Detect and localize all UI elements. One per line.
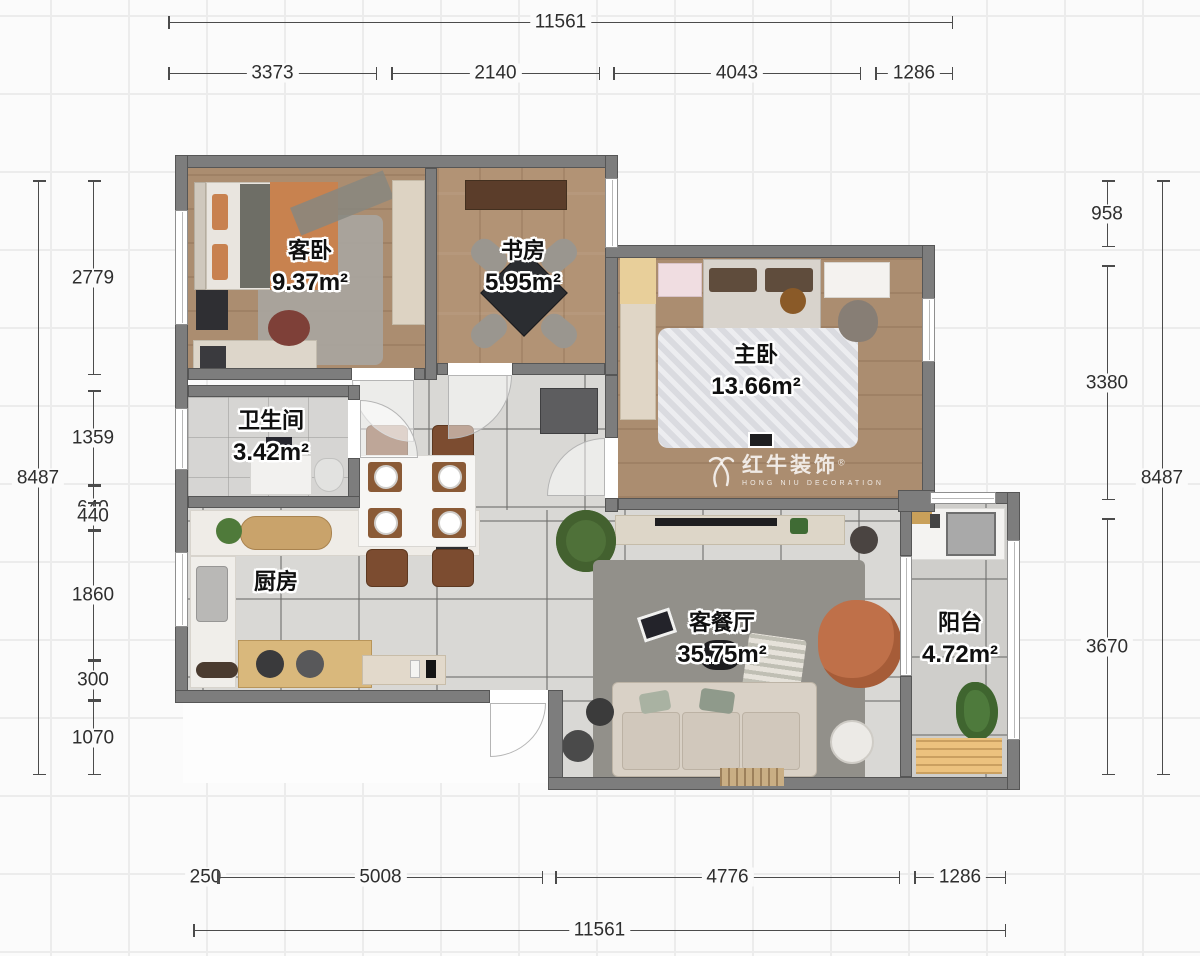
- master-slippers: [748, 432, 774, 448]
- kitchen-sink: [196, 566, 228, 622]
- room-area: 35.75m²: [677, 642, 766, 668]
- wall-guest-study-divider: [425, 168, 437, 380]
- study-shelf: [465, 180, 567, 210]
- dim-label: 2140: [469, 64, 521, 83]
- room-label-guest-bedroom: 客卧 9.37m²: [272, 239, 348, 297]
- dim-label: 4776: [701, 868, 753, 887]
- dim-left-seg-5: 1860: [93, 530, 94, 660]
- dim-label: 958: [1086, 204, 1128, 223]
- master-door-opening: [605, 438, 618, 498]
- bath-toilet: [314, 458, 344, 492]
- entry-door-opening: [490, 690, 548, 703]
- wall-living-bottom: [548, 777, 1020, 790]
- floor-plan-canvas: 11561 3373 2140 4043 1286 250 5008 4776 …: [0, 0, 1200, 956]
- dim-label: 2779: [67, 268, 119, 287]
- wall-balcony-divider-b: [900, 676, 912, 777]
- room-label-study: 书房 5.95m²: [485, 239, 561, 297]
- room-area: 4.72m²: [922, 642, 998, 668]
- guest-pillow-1: [212, 194, 228, 230]
- dim-top-total: 11561: [168, 22, 953, 23]
- wall-entry-right: [548, 690, 563, 790]
- shoes-white: [410, 660, 420, 678]
- wall-study-bottom-b: [512, 363, 605, 375]
- dim-label: 1070: [67, 728, 119, 747]
- guest-window: [175, 210, 188, 325]
- sofa-pillow-sage: [699, 688, 736, 715]
- dim-left-seg-4: 440: [93, 502, 94, 530]
- guest-blanket-gray: [240, 184, 270, 288]
- guest-chair: [268, 310, 310, 346]
- side-table-round: [830, 720, 874, 764]
- kitchen-plant: [216, 518, 242, 544]
- kitchen-cutting-board: [240, 516, 332, 550]
- master-throw-ball: [780, 288, 806, 314]
- side-table-dark: [562, 730, 594, 762]
- dim-label: 3670: [1081, 637, 1133, 656]
- dim-label: 1286: [934, 868, 986, 887]
- dining-chair-6: [432, 549, 474, 587]
- floor-lamp: [586, 698, 614, 726]
- dim-bottom-seg-1: 250: [193, 877, 218, 878]
- sofa-cushion-2: [682, 712, 740, 770]
- room-name: 阳台: [922, 611, 998, 635]
- room-area: 9.37m²: [272, 270, 348, 296]
- dim-right-seg-2: 3380: [1107, 265, 1108, 500]
- hongniu-bull-logo-icon: [706, 455, 736, 494]
- master-cabinet-wood: [620, 258, 656, 304]
- room-area: 5.95m²: [485, 270, 561, 296]
- balcony-wood-mat: [916, 738, 1002, 774]
- stove-burner-2: [296, 650, 324, 678]
- room-name: 客卧: [272, 239, 348, 263]
- guest-speaker: [196, 290, 228, 330]
- master-pillow-1: [709, 268, 757, 292]
- guest-bed-headboard: [194, 182, 206, 290]
- armchair-orange: [818, 600, 902, 688]
- master-chair: [838, 300, 878, 342]
- console-plant: [790, 518, 808, 534]
- dim-top-seg-1: 3373: [168, 73, 377, 74]
- dim-label: 11561: [530, 13, 591, 32]
- dim-top-seg-2: 2140: [391, 73, 600, 74]
- plate-4: [438, 511, 462, 535]
- door-mat: [720, 768, 784, 786]
- dim-top-seg-4: 1286: [875, 73, 953, 74]
- balcony-right-window: [1007, 540, 1020, 740]
- registered-mark: ®: [838, 458, 845, 468]
- dim-label: 1286: [888, 64, 940, 83]
- dim-right-total: 8487: [1162, 180, 1163, 775]
- washing-machine: [946, 512, 996, 556]
- room-name: 卫生间: [233, 409, 309, 433]
- wall-bathroom-top: [188, 385, 360, 397]
- room-name: 客餐厅: [677, 611, 766, 635]
- watermark: 红牛装饰® HONG NIU DECORATION: [706, 455, 884, 494]
- plate-2: [438, 465, 462, 489]
- master-nightstand-right: [824, 262, 890, 298]
- guest-door-opening: [352, 368, 414, 380]
- dim-label: 300: [72, 671, 114, 690]
- wall-master-left-a: [605, 375, 618, 438]
- wall-kitchen-bottom: [175, 690, 490, 703]
- master-nightstand-left: [658, 263, 702, 297]
- shoes-black: [426, 660, 436, 678]
- watermark-subtitle: HONG NIU DECORATION: [742, 480, 884, 487]
- balcony-top-window: [930, 492, 996, 504]
- room-name: 主卧: [711, 343, 800, 367]
- bathroom-window: [175, 408, 188, 470]
- wall-guest-bottom-b: [414, 368, 425, 380]
- room-label-living-dining: 客餐厅 35.75m²: [677, 611, 766, 669]
- kitchen-jars: [196, 662, 238, 678]
- dim-left-total: 8487: [38, 180, 39, 775]
- dim-label: 4043: [711, 64, 763, 83]
- fridge: [540, 388, 598, 434]
- master-window: [922, 298, 935, 362]
- wall-study-bottom-a: [437, 363, 448, 375]
- room-name: 书房: [485, 239, 561, 263]
- tv: [655, 518, 777, 526]
- dim-right-seg-1: 958: [1107, 180, 1108, 247]
- dim-label: 11561: [569, 921, 630, 940]
- dim-label: 3373: [246, 64, 298, 83]
- wall-guest-bottom-a: [188, 368, 352, 380]
- wall-master-top: [605, 245, 935, 258]
- study-window: [605, 178, 618, 248]
- room-label-bathroom: 卫生间 3.42m²: [233, 409, 309, 467]
- dim-label: 440: [72, 507, 114, 526]
- plate-3: [374, 511, 398, 535]
- balcony-faucet: [930, 514, 940, 528]
- balcony-shelf-item: [910, 512, 932, 524]
- dim-label: 3380: [1081, 373, 1133, 392]
- wall-bathroom-right-a: [348, 385, 360, 400]
- stove-burner-1: [256, 650, 284, 678]
- guest-pillow-2: [212, 244, 228, 280]
- dim-top-seg-3: 4043: [613, 73, 861, 74]
- dim-bottom-total: 11561: [193, 930, 1006, 931]
- dim-bottom-seg-3: 4776: [555, 877, 900, 878]
- dim-left-seg-7: 1070: [93, 700, 94, 775]
- bathroom-door-opening: [348, 400, 360, 458]
- dim-label: 1860: [67, 586, 119, 605]
- room-label-kitchen: 厨房: [254, 570, 298, 594]
- wall-top: [175, 155, 618, 168]
- wall-master-left-b: [605, 498, 618, 512]
- wall-master-bottom: [618, 498, 922, 510]
- dim-left-seg-6: 300: [93, 660, 94, 700]
- room-area: 13.66m²: [711, 374, 800, 400]
- balcony-plant: [956, 682, 998, 740]
- wall-master-right: [922, 245, 935, 512]
- watermark-brand: 红牛装饰: [742, 454, 838, 477]
- dim-left-seg-1: 2779: [93, 180, 94, 375]
- dim-right-seg-3: 3670: [1107, 518, 1108, 775]
- room-name: 厨房: [254, 570, 298, 594]
- dim-label: 1359: [67, 428, 119, 447]
- dining-chair-5: [366, 549, 408, 587]
- wall-bathroom-bottom: [188, 496, 360, 508]
- room-area: 3.42m²: [233, 440, 309, 466]
- dim-label: 8487: [1136, 468, 1188, 487]
- plate-1: [374, 465, 398, 489]
- guest-wardrobe: [392, 180, 425, 325]
- sofa-cushion-3: [742, 712, 800, 770]
- sofa-cushion-1: [622, 712, 680, 770]
- dim-bottom-seg-2: 5008: [218, 877, 543, 878]
- living-stool: [850, 526, 878, 554]
- study-door-opening: [448, 363, 512, 375]
- kitchen-window: [175, 552, 188, 627]
- dim-bottom-seg-4: 1286: [914, 877, 1006, 878]
- dim-left-seg-2: 1359: [93, 390, 94, 485]
- balcony-sliding-door: [900, 556, 912, 676]
- guest-pc: [200, 346, 226, 370]
- room-label-master-bedroom: 主卧 13.66m²: [711, 343, 800, 401]
- dim-label: 8487: [12, 468, 64, 487]
- dim-label: 5008: [354, 868, 406, 887]
- room-label-balcony: 阳台 4.72m²: [922, 611, 998, 669]
